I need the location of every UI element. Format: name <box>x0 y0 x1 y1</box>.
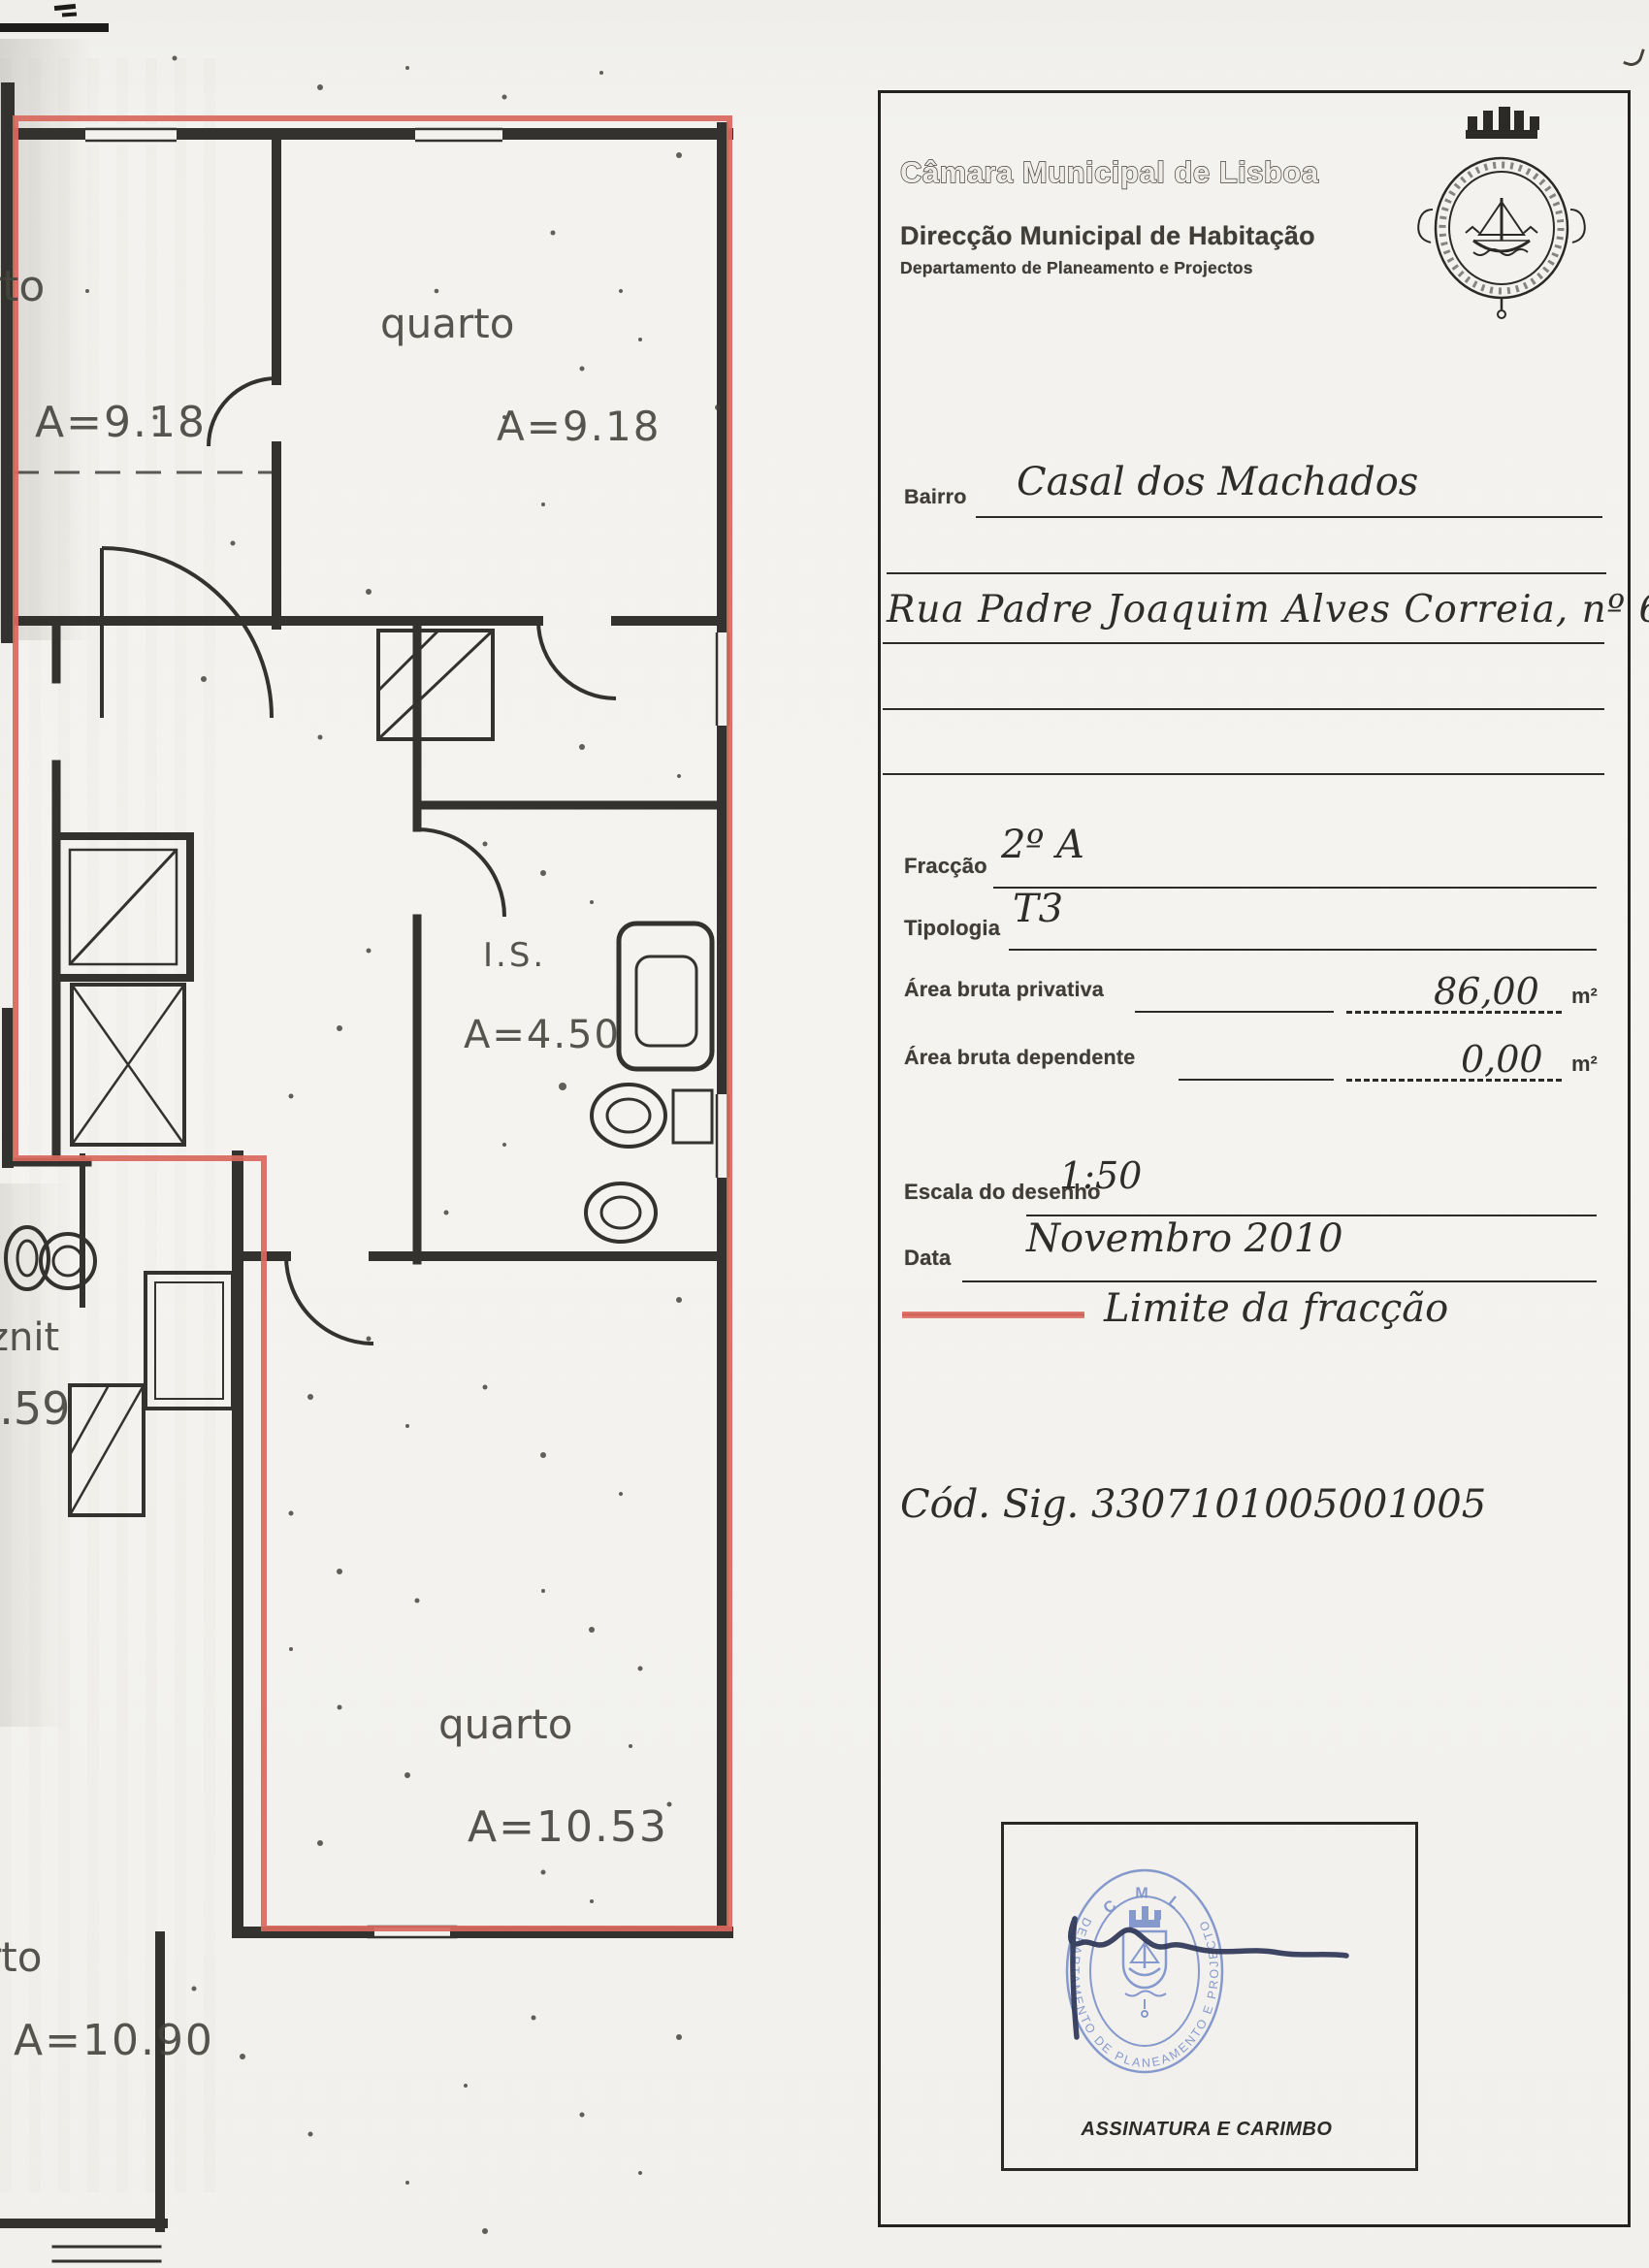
tipologia-value: T3 <box>1013 887 1063 931</box>
lisbon-coat-of-arms <box>1392 97 1610 325</box>
directorate-title: Direcção Municipal de Habitação <box>900 221 1315 251</box>
ruled-line <box>883 642 1604 644</box>
area-label: A=10.53 <box>468 1802 668 1852</box>
closet-hatch <box>70 850 177 964</box>
ruled-line <box>887 572 1606 574</box>
bairro-label: Bairro <box>904 485 967 509</box>
area-label: A=9.18 <box>497 403 661 450</box>
cml-rubber-stamp: C M L DEPARTAMENTO DE PLANEAMENTO E PROJ… <box>1009 1838 1397 2149</box>
scanned-floor-plan-page: { "header": { "municipality": "Câmara Mu… <box>0 0 1649 2268</box>
room-label: rto <box>0 1933 42 1981</box>
door-arc <box>286 1256 373 1344</box>
floor-plan-drawing: rto A=9.18 quarto A=9.18 I.S. A=4.50 zni… <box>0 0 834 2268</box>
municipality-title-text: Câmara Municipal de Lisboa <box>900 155 1319 189</box>
shaft-hatch <box>378 631 493 739</box>
door-arc <box>417 829 504 917</box>
data-value: Novembro 2010 <box>1026 1216 1343 1261</box>
bidet <box>586 1183 656 1242</box>
ruled-line <box>976 516 1602 518</box>
sink <box>636 956 696 1046</box>
area-privativa-unit: m² <box>1571 984 1598 1009</box>
tipologia-label: Tipologia <box>904 916 1000 941</box>
fraction-limit-legend-line <box>902 1312 1084 1318</box>
room-label: rto <box>0 262 45 311</box>
sink <box>53 1247 82 1276</box>
door-arc <box>102 548 272 718</box>
wardrobe <box>155 1282 223 1399</box>
toilet <box>607 1099 650 1132</box>
area-privativa-value: 86,00 <box>1434 970 1539 1013</box>
ruled-line <box>1135 1011 1334 1013</box>
closet-hatch <box>70 1385 144 1515</box>
room-label: znit <box>0 1315 59 1360</box>
department-title: Departamento de Planeamento e Projectos <box>900 258 1253 278</box>
area-dependente-value: 0,00 <box>1461 1038 1543 1081</box>
stamp-crest <box>1123 1906 1166 2017</box>
cod-sig: Cód. Sig. 3307101005001005 <box>900 1482 1486 1527</box>
ruled-line <box>883 773 1604 775</box>
fraction-limit-legend-label: Limite da fracção <box>1104 1286 1448 1331</box>
area-label: A=10.90 <box>14 2016 214 2065</box>
closet-hatch <box>72 985 184 1145</box>
bidet <box>601 1197 640 1228</box>
room-label: quarto <box>380 300 514 347</box>
area-privativa-label: Área bruta privativa <box>904 978 1104 1002</box>
ruled-line <box>1179 1079 1334 1081</box>
toilet <box>17 1241 37 1276</box>
door-arc <box>209 378 276 446</box>
municipality-title: Câmara Municipal de Lisboa <box>897 146 1363 200</box>
area-label: A=9.18 <box>35 398 207 447</box>
mural-crown <box>1466 107 1539 139</box>
address-value: Rua Padre Joaquim Alves Correia, nº 6 <box>887 588 1649 632</box>
wardrobe <box>145 1273 233 1409</box>
ship-emblem <box>1466 198 1537 255</box>
bairro-value: Casal dos Machados <box>1017 460 1418 504</box>
area-dependente-label: Área bruta dependente <box>904 1046 1135 1070</box>
ruled-line <box>993 887 1597 889</box>
fraction-boundary-line <box>16 118 729 1928</box>
side-flourish <box>1418 210 1433 243</box>
ruled-line <box>1009 949 1597 951</box>
room-label: I.S. <box>483 936 546 975</box>
scan-corner-mark <box>1623 45 1645 69</box>
ruled-line <box>883 708 1604 710</box>
toilet-tank <box>673 1090 712 1143</box>
plan-labels: rto A=9.18 quarto A=9.18 I.S. A=4.50 zni… <box>0 262 668 2065</box>
fraccao-value: 2º A <box>1001 823 1084 867</box>
area-label: A=4.50 <box>464 1013 621 1057</box>
room-label: quarto <box>438 1701 572 1748</box>
fraccao-label: Fracção <box>904 854 987 879</box>
door-arc <box>538 621 616 698</box>
ruled-line <box>962 1280 1597 1282</box>
side-flourish <box>1570 210 1585 243</box>
escala-value: 1:50 <box>1059 1154 1142 1197</box>
area-label: 1.59 <box>0 1382 70 1435</box>
tassel <box>1498 310 1505 318</box>
data-label: Data <box>904 1246 952 1271</box>
window <box>53 2247 160 2261</box>
area-dependente-unit: m² <box>1571 1052 1598 1077</box>
toilet <box>592 1085 665 1147</box>
